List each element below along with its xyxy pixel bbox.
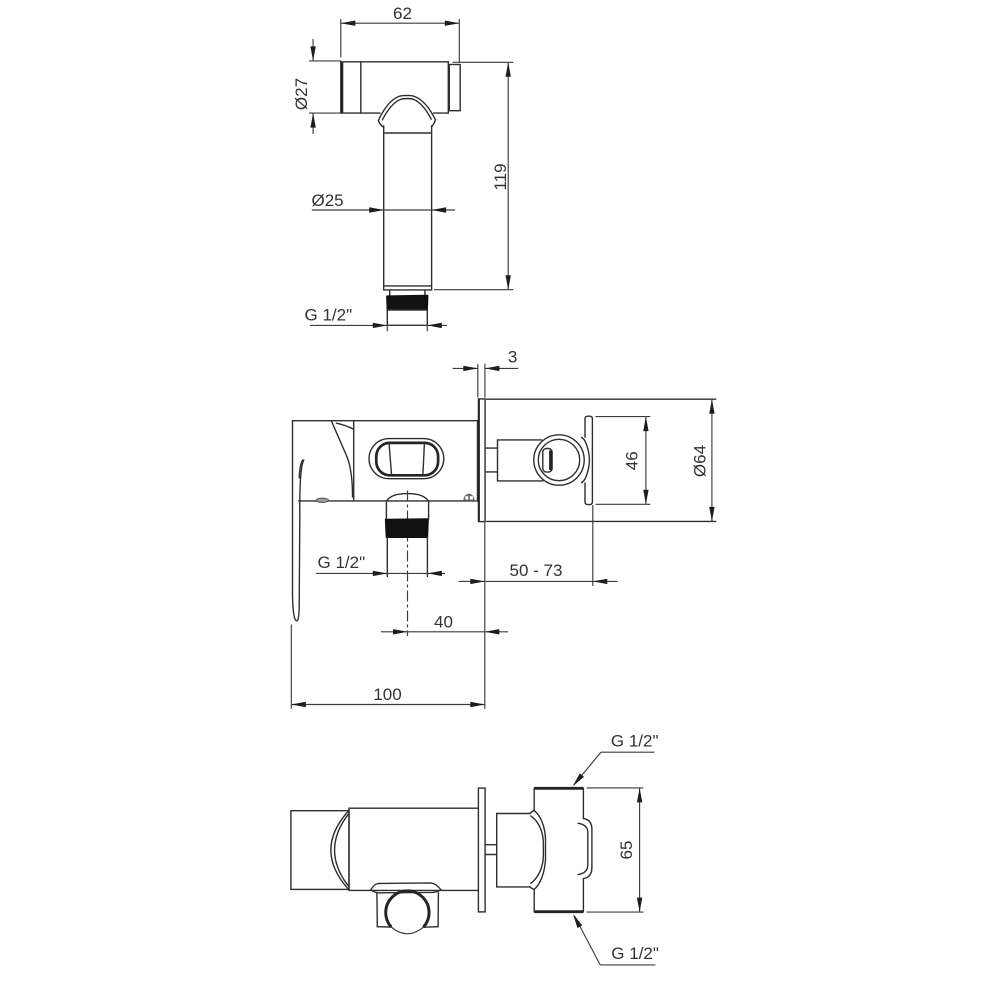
svg-text:G 1/2": G 1/2" xyxy=(318,553,366,572)
svg-text:G 1/2": G 1/2" xyxy=(611,944,659,963)
svg-text:40: 40 xyxy=(434,613,453,632)
svg-text:65: 65 xyxy=(617,841,636,860)
svg-text:50 - 73: 50 - 73 xyxy=(510,561,563,580)
svg-text:G 1/2": G 1/2" xyxy=(305,306,353,325)
svg-text:Ø64: Ø64 xyxy=(691,445,710,477)
svg-text:Ø25: Ø25 xyxy=(312,191,344,210)
svg-text:3: 3 xyxy=(508,348,517,367)
svg-text:100: 100 xyxy=(373,685,401,704)
svg-text:119: 119 xyxy=(491,163,510,190)
svg-text:G 1/2": G 1/2" xyxy=(611,732,659,751)
svg-text:46: 46 xyxy=(623,451,642,470)
svg-text:62: 62 xyxy=(393,4,412,23)
svg-text:Ø27: Ø27 xyxy=(292,78,311,110)
